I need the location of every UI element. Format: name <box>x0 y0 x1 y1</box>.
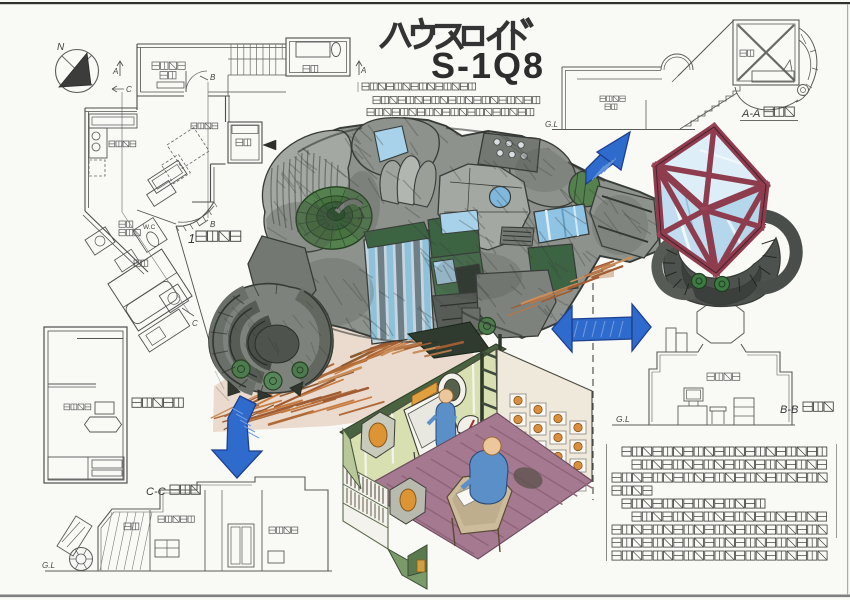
svg-text:W.C: W.C <box>143 224 156 231</box>
svg-text:G.L: G.L <box>545 120 558 129</box>
svg-text:C: C <box>192 319 198 328</box>
svg-text:A: A <box>360 66 366 75</box>
svg-text:C: C <box>126 85 132 94</box>
svg-text:B: B <box>210 220 216 229</box>
svg-text:C-C: C-C <box>146 486 166 498</box>
svg-text:A-A: A-A <box>741 108 760 120</box>
svg-text:B: B <box>210 73 216 82</box>
svg-text:A: A <box>112 67 118 76</box>
svg-text:B-B: B-B <box>780 404 798 416</box>
svg-text:G.L: G.L <box>42 561 55 570</box>
svg-text:1: 1 <box>188 231 195 246</box>
svg-text:N: N <box>57 42 65 53</box>
svg-text:G.L: G.L <box>616 414 630 424</box>
svg-text:S-1Q8: S-1Q8 <box>431 45 545 86</box>
